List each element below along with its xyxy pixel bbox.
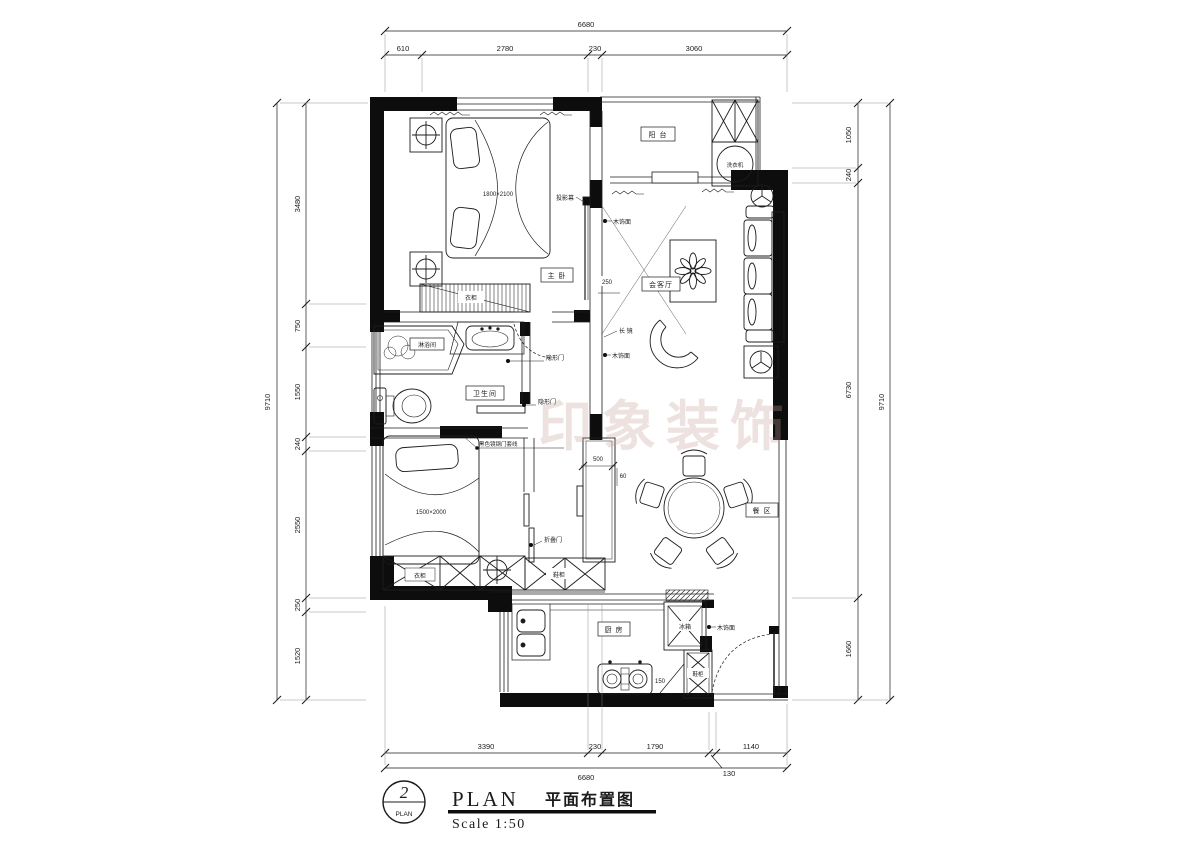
svg-text:冰箱: 冰箱 [679, 623, 691, 631]
dim-left-5: 2550 [293, 517, 302, 534]
curtain-box-annotation [540, 112, 572, 115]
dim-left-total: 9710 [263, 394, 272, 411]
ceiling-fan-symbol [483, 556, 511, 584]
kitchen-sink [512, 604, 550, 660]
dimension-lines [277, 31, 890, 768]
title-block: 2 PLAN PLAN 平面布置图 Scale 1:50 [383, 781, 656, 832]
curtain-box-annotation [430, 112, 470, 115]
living-room-furniture [602, 185, 784, 378]
dim-bottom-leader: 130 [723, 769, 736, 778]
dining-set [633, 450, 755, 572]
label-long-mirror: 长 镜 [604, 327, 633, 337]
label-shoe-cabinet-hall: 鞋柜 [546, 568, 572, 579]
walls [370, 97, 788, 707]
thin-walls-and-windows [370, 97, 788, 700]
dim-left-2: 750 [293, 320, 302, 333]
label-wood-panel-2: 木饰面 [603, 352, 630, 360]
label-wood-panel-1: 木饰面 [603, 218, 631, 226]
master-bed [446, 118, 550, 258]
second-wardrobe [383, 556, 525, 590]
svg-text:长 镜: 长 镜 [619, 327, 633, 335]
dim-top-1: 610 [397, 44, 410, 53]
floor-plan-page: 6680 610 2780 230 3060 3390 230 1790 114… [0, 0, 1200, 859]
svg-text:木饰面: 木饰面 [613, 218, 631, 226]
dim-left-7: 1520 [293, 648, 302, 665]
label-balcony: 阳 台 [641, 127, 675, 141]
label-hidden-door-1: 隐形门 [506, 354, 564, 363]
nightstand-bottom [410, 252, 442, 286]
svg-text:主 卧: 主 卧 [548, 271, 567, 280]
svg-text:衣柜: 衣柜 [465, 294, 477, 302]
label-master-bedroom: 主 卧 [541, 268, 573, 282]
dim-cabinet-width: 500 [593, 457, 604, 463]
dim-top-2: 2780 [497, 44, 514, 53]
floor-plan-drawing: 6680 610 2780 230 3060 3390 230 1790 114… [0, 0, 1200, 859]
dim-right-4: 1660 [844, 641, 853, 658]
doors [477, 324, 774, 694]
dim-top-4: 3060 [686, 44, 703, 53]
dim-bottom-3: 1790 [647, 742, 664, 751]
dim-top-total: 6680 [578, 20, 595, 29]
svg-text:鞋柜: 鞋柜 [692, 670, 704, 678]
folding-door [524, 494, 534, 562]
stove [598, 661, 652, 694]
svg-text:衣柜: 衣柜 [414, 572, 426, 580]
dining-chair [648, 535, 684, 571]
dim-right-total: 9710 [877, 394, 886, 411]
title-zh: 平面布置图 [545, 790, 635, 809]
bathroom-sliding-door [477, 406, 525, 413]
plant [675, 253, 711, 289]
projection-screen [583, 197, 590, 300]
title-rule [448, 810, 656, 814]
svg-text:阳 台: 阳 台 [649, 130, 668, 139]
dim-bottom-4: 1140 [743, 742, 759, 751]
title-en: PLAN [452, 787, 519, 811]
svg-text:隐形门: 隐形门 [546, 354, 564, 362]
label-wardrobe-second: 衣柜 [405, 568, 435, 581]
curtain-box-annotation [612, 191, 644, 194]
floor-speaker-bottom [744, 346, 778, 378]
svg-text:淋浴间: 淋浴间 [418, 341, 436, 349]
dim-cabinet-depth: 60 [620, 474, 627, 480]
label-folding-door: 折叠门 [534, 536, 562, 545]
dim-bottom-total: 6680 [578, 773, 595, 782]
svg-text:黑色镜钢门套线: 黑色镜钢门套线 [479, 440, 518, 448]
svg-text:木饰面: 木饰面 [717, 624, 735, 632]
dim-left-4: 240 [293, 438, 302, 451]
svg-text:餐 区: 餐 区 [753, 506, 772, 515]
label-wardrobe-master: 衣柜 [458, 291, 484, 303]
label-bathroom: 卫生间 [466, 386, 504, 400]
svg-text:木饰面: 木饰面 [612, 352, 630, 360]
kitchen-fixtures [512, 590, 712, 698]
label-shoe-cabinet-entry: 鞋柜 [687, 668, 709, 678]
nightstand-top [410, 118, 442, 152]
svg-text:厨 房: 厨 房 [605, 625, 624, 634]
dim-screen-offset: 250 [602, 280, 613, 286]
dim-right-3: 6730 [844, 382, 853, 399]
floor-speaker-top [751, 185, 773, 207]
svg-text:隐形门: 隐形门 [538, 398, 556, 406]
dimension-labels: 6680 610 2780 230 3060 3390 230 1790 114… [263, 20, 886, 782]
label-living: 会客厅 [642, 277, 680, 291]
detail-number: 2 [400, 783, 409, 802]
dim-left-1: 3480 [293, 196, 302, 213]
master-bedroom-door-arc [514, 324, 550, 358]
label-washing-machine: 洗衣机 [721, 159, 749, 169]
coffee-table [670, 240, 716, 302]
dimension-ticks [273, 27, 894, 772]
svg-text:会客厅: 会客厅 [649, 280, 673, 289]
dim-stove-gap: 150 [655, 679, 666, 685]
label-dining: 餐 区 [746, 503, 778, 517]
svg-text:洗衣机: 洗衣机 [727, 161, 744, 169]
balcony-cabinet [712, 100, 758, 142]
svg-text:鞋柜: 鞋柜 [553, 571, 565, 579]
label-fridge: 冰箱 [673, 621, 697, 631]
dining-chair [704, 535, 740, 571]
detail-circle-label: PLAN [396, 811, 413, 818]
dim-bottom-2: 230 [589, 742, 602, 751]
label-shower: 淋浴间 [410, 338, 444, 350]
label-bed-second-size: 1500×2000 [416, 510, 447, 516]
svg-text:折叠门: 折叠门 [544, 536, 562, 544]
second-bed [383, 436, 479, 564]
dining-chair [633, 478, 666, 511]
entry-door [712, 632, 774, 694]
dim-bottom-1: 3390 [478, 742, 495, 751]
bathroom-sink [450, 322, 524, 354]
dim-top-3: 230 [589, 44, 602, 53]
label-wood-panel-3: 木饰面 [707, 624, 735, 632]
label-kitchen: 厨 房 [598, 622, 630, 636]
lounge-chair [650, 320, 698, 368]
dining-chair [681, 450, 707, 476]
svg-text:投影幕: 投影幕 [556, 194, 574, 202]
label-bed-master-size: 1800×2100 [483, 192, 514, 198]
dim-right-2: 240 [844, 169, 853, 182]
svg-text:卫生间: 卫生间 [473, 389, 497, 398]
curtain-box-annotation [702, 189, 734, 192]
title-scale: Scale 1:50 [452, 817, 526, 832]
dim-right-1: 1050 [844, 127, 853, 144]
dim-left-3: 1550 [293, 384, 302, 401]
dim-left-6: 250 [293, 599, 302, 612]
